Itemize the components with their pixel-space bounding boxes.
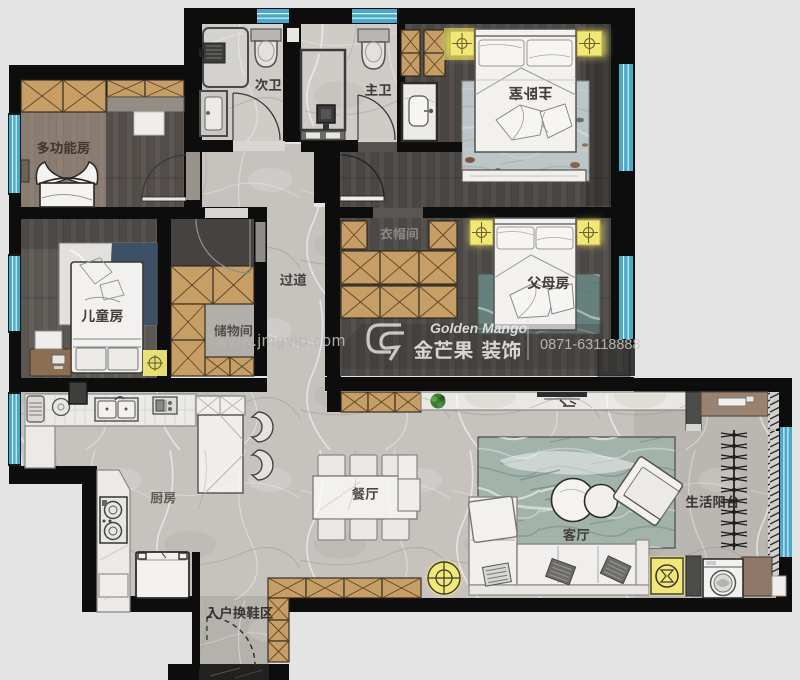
svg-text:www.jmgvip.com: www.jmgvip.com	[215, 332, 346, 350]
svg-text:Golden Mango: Golden Mango	[430, 320, 528, 336]
svg-text:0871-63118888: 0871-63118888	[540, 337, 641, 353]
